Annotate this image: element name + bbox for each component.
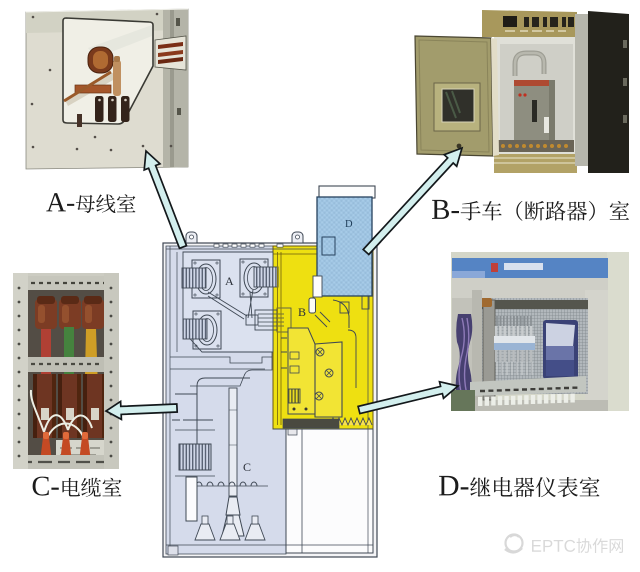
svg-text:C: C <box>243 460 251 474</box>
svg-text:A: A <box>225 274 234 288</box>
svg-text:D: D <box>345 219 353 230</box>
svg-text:B: B <box>298 305 306 319</box>
